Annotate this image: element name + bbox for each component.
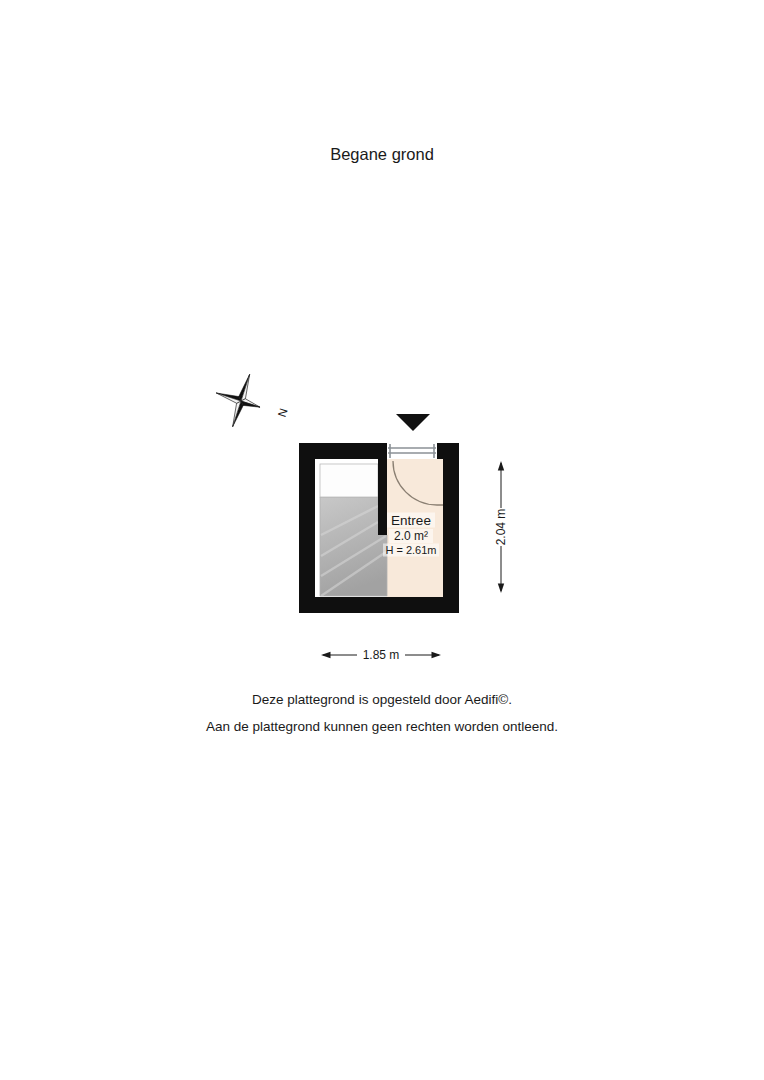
footer-attribution: Deze plattegrond is opgesteld door Aedif… [0, 692, 764, 707]
compass-north-label: N [276, 407, 290, 419]
entree-room-floor [387, 459, 443, 597]
vertical-dimension-label: 2.04 m [494, 509, 508, 546]
door-opening [387, 443, 437, 459]
stair-lower-flight [320, 497, 387, 596]
divider-wall [378, 459, 387, 535]
vertical-dimension: 2.04 m [494, 461, 508, 593]
floorplan-page: Begane grond N [0, 0, 764, 1080]
room-ceiling-height-label: H = 2.61m [385, 544, 436, 556]
entrance-arrow-icon [396, 414, 430, 431]
room-label-group: Entree 2.0 m² H = 2.61m [383, 513, 439, 557]
dimension-arrowhead-right [432, 652, 442, 658]
footer-disclaimer: Aan de plattegrond kunnen geen rechten w… [0, 719, 764, 734]
compass-rose-icon: N [208, 366, 290, 433]
staircase [320, 464, 387, 596]
horizontal-dimension-label: 1.85 m [363, 648, 400, 662]
room-name-label: Entree [391, 513, 431, 528]
dimension-arrowhead-down [498, 584, 504, 594]
page-title: Begane grond [0, 145, 764, 164]
dimension-arrowhead-up [498, 461, 504, 471]
floor-plan-canvas: N [190, 360, 550, 670]
room-area-label: 2.0 m² [394, 529, 428, 543]
horizontal-dimension: 1.85 m [321, 648, 441, 662]
dimension-arrowhead-left [321, 652, 331, 658]
stair-landing [320, 464, 378, 497]
